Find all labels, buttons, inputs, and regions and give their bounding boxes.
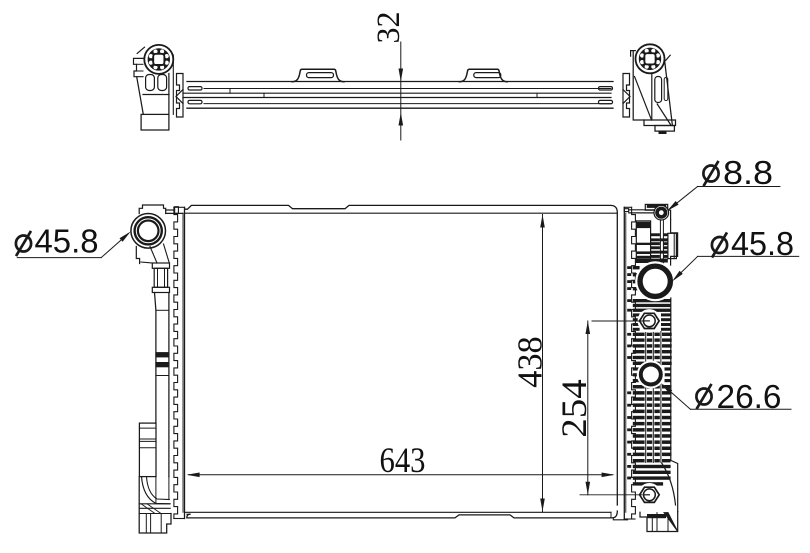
svg-text:45.8: 45.8 bbox=[35, 223, 99, 260]
svg-text:438: 438 bbox=[511, 336, 550, 388]
svg-text:32: 32 bbox=[371, 12, 407, 44]
svg-text:26.6: 26.6 bbox=[717, 378, 782, 415]
svg-text:45.8: 45.8 bbox=[731, 225, 794, 262]
svg-text:8.8: 8.8 bbox=[723, 154, 773, 191]
svg-text:643: 643 bbox=[380, 440, 426, 480]
svg-text:254: 254 bbox=[554, 379, 594, 438]
